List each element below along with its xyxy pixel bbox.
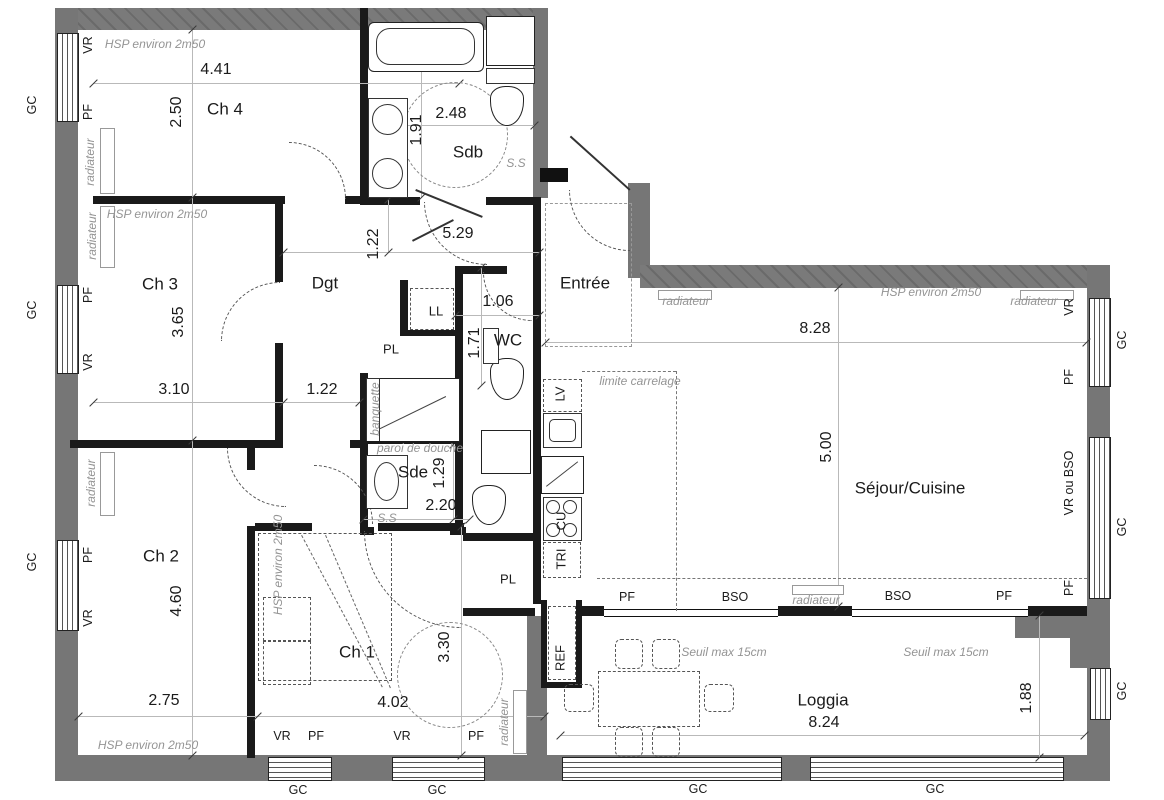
room-loggia: Loggia bbox=[797, 692, 848, 709]
edge-gc-left-1: GC bbox=[26, 96, 39, 115]
dimline-310-122 bbox=[93, 402, 360, 403]
ann-radiateur-sejour-1: radiateur bbox=[1010, 295, 1057, 307]
window-ch1-2 bbox=[392, 757, 485, 781]
dim-dgt-top: 1.22 bbox=[366, 228, 382, 259]
edge-vr-ch1-1: VR bbox=[273, 730, 290, 743]
wall-ref-west bbox=[541, 600, 547, 688]
dim-loggia-width: 8.24 bbox=[808, 715, 839, 731]
wall-sdb-south-2 bbox=[486, 197, 533, 205]
room-sejour-cuisine: Séjour/Cuisine bbox=[855, 480, 966, 497]
edge-vr-sejour: VR bbox=[1063, 298, 1076, 315]
washbasin-icon bbox=[372, 104, 403, 135]
ann-hsp-ch1: HSP environ 2m50 bbox=[272, 515, 284, 615]
room-ch1: Ch 1 bbox=[339, 644, 375, 661]
ann-ss-sde: S.S bbox=[377, 512, 396, 524]
edge-vr-ch3: VR bbox=[82, 353, 95, 370]
edge-gc-left-3: GC bbox=[26, 553, 39, 572]
dim-dgt-width: 1.22 bbox=[306, 382, 337, 398]
toilet-icon bbox=[490, 86, 524, 126]
dim-ch1-height: 3.30 bbox=[437, 631, 453, 662]
pier-loggia-2 bbox=[1062, 755, 1087, 781]
wall-entry-cap bbox=[540, 168, 568, 182]
ann-hsp-ch3: HSP environ 2m50 bbox=[107, 208, 207, 220]
edge-gc-bottom-2: GC bbox=[428, 784, 447, 797]
sliding-door-1 bbox=[604, 609, 778, 617]
chair-icon bbox=[615, 639, 643, 669]
chair-icon bbox=[615, 727, 643, 757]
edge-pf-sejour-2: PF bbox=[1063, 580, 1076, 596]
floor-plan: Ch 4Ch 3Ch 2Ch 1SdbSdeDgtWCEntréeSéjour/… bbox=[0, 0, 1164, 800]
radiator-icon bbox=[100, 452, 115, 516]
dim-dgt-length: 5.29 bbox=[442, 226, 473, 242]
wall-ll-south bbox=[400, 330, 462, 336]
ann-radiateur-ch1: radiateur bbox=[498, 698, 510, 745]
wall-ch2-east-2 bbox=[247, 526, 255, 758]
dim-ch2-width: 2.75 bbox=[148, 693, 179, 709]
room-sdb: Sdb bbox=[453, 144, 483, 161]
ann-hsp-ch4: HSP environ 2m50 bbox=[105, 38, 205, 50]
chair-icon bbox=[652, 639, 680, 669]
edge-gc-left-2: GC bbox=[26, 301, 39, 320]
washbasin-icon bbox=[374, 462, 399, 501]
chair-icon bbox=[564, 684, 594, 712]
dim-ch1-width: 4.02 bbox=[377, 695, 408, 711]
edge-bso-1: BSO bbox=[722, 591, 748, 604]
edge-pf-loggia-1: PF bbox=[619, 591, 635, 604]
ann-limite-carrelage: limite carrelage bbox=[599, 375, 680, 387]
edge-vr-ch2: VR bbox=[82, 609, 95, 626]
kitchen-sink-icon bbox=[549, 419, 576, 442]
closet-ll: LL bbox=[429, 305, 443, 318]
window-loggia-east bbox=[1090, 668, 1111, 720]
toilet-icon bbox=[490, 358, 524, 400]
closet-pl-1: PL bbox=[383, 343, 399, 356]
room-entree: Entrée bbox=[560, 275, 610, 292]
wall-kitchen-back bbox=[533, 379, 541, 604]
appliance-ref: REF bbox=[554, 645, 567, 671]
edge-vr-ch4: VR bbox=[82, 36, 95, 53]
edge-pf-ch3: PF bbox=[82, 287, 95, 303]
shelf-sdb bbox=[486, 68, 535, 84]
dim-wc-width: 1.06 bbox=[482, 294, 513, 310]
appliance-lv: LV bbox=[554, 387, 567, 402]
wall-sejour-south-1 bbox=[582, 606, 604, 616]
edge-pf-loggia-2: PF bbox=[996, 590, 1012, 603]
edge-gc-bottom-4: GC bbox=[926, 783, 945, 796]
dimline-122-top bbox=[388, 200, 389, 252]
edge-gc-right-1: GC bbox=[1116, 331, 1129, 350]
appliance-tri: TRI bbox=[555, 549, 568, 570]
radiator-icon bbox=[100, 128, 115, 194]
wardrobe-sdb-icon bbox=[486, 16, 535, 66]
wall-ch4-south-2 bbox=[345, 196, 361, 204]
ann-paroi-de-douche: paroi de douche bbox=[377, 442, 463, 454]
wall-ch3-ch2 bbox=[70, 440, 283, 448]
edge-pf-ch1-2: PF bbox=[468, 730, 484, 743]
door-arc-ch2-icon bbox=[227, 448, 286, 507]
wall-loggia-ne bbox=[1070, 616, 1090, 668]
ann-banquette: banquette bbox=[369, 382, 381, 435]
dimline-529 bbox=[283, 252, 540, 253]
dim-ch2-height: 4.60 bbox=[169, 585, 185, 616]
closet-pl-2: PL bbox=[500, 573, 516, 586]
room-wc: WC bbox=[494, 332, 522, 349]
wall-sdb-west bbox=[360, 8, 368, 204]
edge-vr-ch1-2: VR bbox=[393, 730, 410, 743]
edge-pf-sejour-1: PF bbox=[1063, 369, 1076, 385]
ann-hsp-ch2: HSP environ 2m50 bbox=[98, 739, 198, 751]
door-arc-ch4-icon bbox=[289, 142, 346, 199]
room-dgt: Dgt bbox=[312, 275, 338, 292]
ann-radiateur-ch4: radiateur bbox=[84, 138, 96, 185]
edge-gc-bottom-1: GC bbox=[289, 784, 308, 797]
ann-radiateur-ch3: radiateur bbox=[86, 212, 98, 259]
dim-ch3-height: 3.65 bbox=[171, 306, 187, 337]
toilet-icon bbox=[472, 485, 506, 525]
door-leaf-entrance-icon bbox=[570, 136, 630, 191]
dim-sdb-width: 2.48 bbox=[435, 106, 466, 122]
edge-gc-bottom-3: GC bbox=[689, 783, 708, 796]
door-arc-ch3-icon bbox=[221, 282, 280, 341]
ann-hsp-sejour: HSP environ 2m50 bbox=[881, 286, 981, 298]
dim-ch4-width: 4.41 bbox=[200, 62, 231, 78]
room-ch2: Ch 2 bbox=[143, 548, 179, 565]
wall-ll-west bbox=[400, 280, 408, 336]
dim-ch3-width: 3.10 bbox=[158, 382, 189, 398]
bathtub-inner bbox=[376, 28, 475, 65]
edge-vr-ou-bso: VR ou BSO bbox=[1063, 451, 1076, 516]
wardrobe-module bbox=[263, 641, 311, 685]
pier-loggia-1 bbox=[780, 755, 810, 781]
dim-sde-width: 2.20 bbox=[425, 498, 456, 514]
dimline-441 bbox=[93, 83, 460, 84]
wall-ch3-ch2-end bbox=[350, 440, 360, 448]
dim-sejour-width: 8.28 bbox=[799, 321, 830, 337]
dim-wc-height: 1.71 bbox=[467, 327, 483, 358]
window-sejour-2 bbox=[1089, 437, 1111, 599]
dimline-188 bbox=[1039, 616, 1040, 757]
room-ch3: Ch 3 bbox=[142, 276, 178, 293]
edge-bso-2: BSO bbox=[885, 590, 911, 603]
room-ch4: Ch 4 bbox=[207, 101, 243, 118]
dim-ch4-height: 2.50 bbox=[169, 96, 185, 127]
window-ch2 bbox=[57, 540, 79, 631]
edge-gc-right-3: GC bbox=[1116, 682, 1129, 701]
limite-carrelage-line-v bbox=[676, 371, 677, 611]
wall-dgt-ch3-1 bbox=[275, 204, 283, 282]
ann-radiateur-sejour-2: radiateur bbox=[792, 594, 839, 606]
shower-wc-corner bbox=[481, 430, 531, 474]
window-loggia-rail-1 bbox=[562, 757, 782, 781]
dimline-500 bbox=[838, 288, 839, 606]
wall-pl2-north bbox=[463, 533, 535, 541]
chair-icon bbox=[652, 727, 680, 757]
wall-top-right bbox=[640, 265, 1110, 288]
ann-ss-sdb: S.S bbox=[506, 157, 525, 169]
washbasin-icon bbox=[372, 158, 403, 189]
dining-table-icon bbox=[598, 671, 700, 727]
edge-gc-right-2: GC bbox=[1116, 518, 1129, 537]
sliding-door-2 bbox=[852, 609, 1028, 617]
dim-loggia-depth: 1.88 bbox=[1019, 682, 1035, 713]
edge-pf-ch1-1: PF bbox=[308, 730, 324, 743]
edge-pf-ch4: PF bbox=[82, 104, 95, 120]
wall-pl2-south bbox=[463, 608, 535, 616]
wall-sejour-south-2 bbox=[778, 606, 852, 616]
limite-carrelage-line-h bbox=[582, 371, 676, 372]
ann-radiateur-ch2: radiateur bbox=[85, 459, 97, 506]
window-sejour-1 bbox=[1089, 298, 1111, 387]
ann-radiateur-entree: radiateur bbox=[662, 295, 709, 307]
dim-sde-height: 1.29 bbox=[432, 457, 448, 488]
window-ch4 bbox=[57, 33, 79, 122]
wall-sejour-south-3 bbox=[1028, 606, 1087, 616]
window-ch1-1 bbox=[268, 757, 332, 781]
chair-icon bbox=[704, 684, 734, 712]
ann-seuil-2: Seuil max 15cm bbox=[903, 646, 988, 658]
wall-dgt-ch3-2 bbox=[275, 343, 283, 443]
dim-sejour-height: 5.00 bbox=[819, 431, 835, 462]
dimline-left-vertical bbox=[192, 30, 193, 755]
window-ch3 bbox=[57, 285, 79, 374]
dim-sdb-height: 1.91 bbox=[409, 114, 425, 145]
room-sde: Sde bbox=[398, 464, 428, 481]
appliance-cu: CU bbox=[555, 512, 568, 531]
radiator-icon bbox=[513, 690, 527, 754]
edge-pf-ch2: PF bbox=[82, 547, 95, 563]
loggia-bso-guide bbox=[597, 578, 1087, 579]
ann-seuil-1: Seuil max 15cm bbox=[681, 646, 766, 658]
window-loggia-rail-2 bbox=[810, 757, 1064, 781]
